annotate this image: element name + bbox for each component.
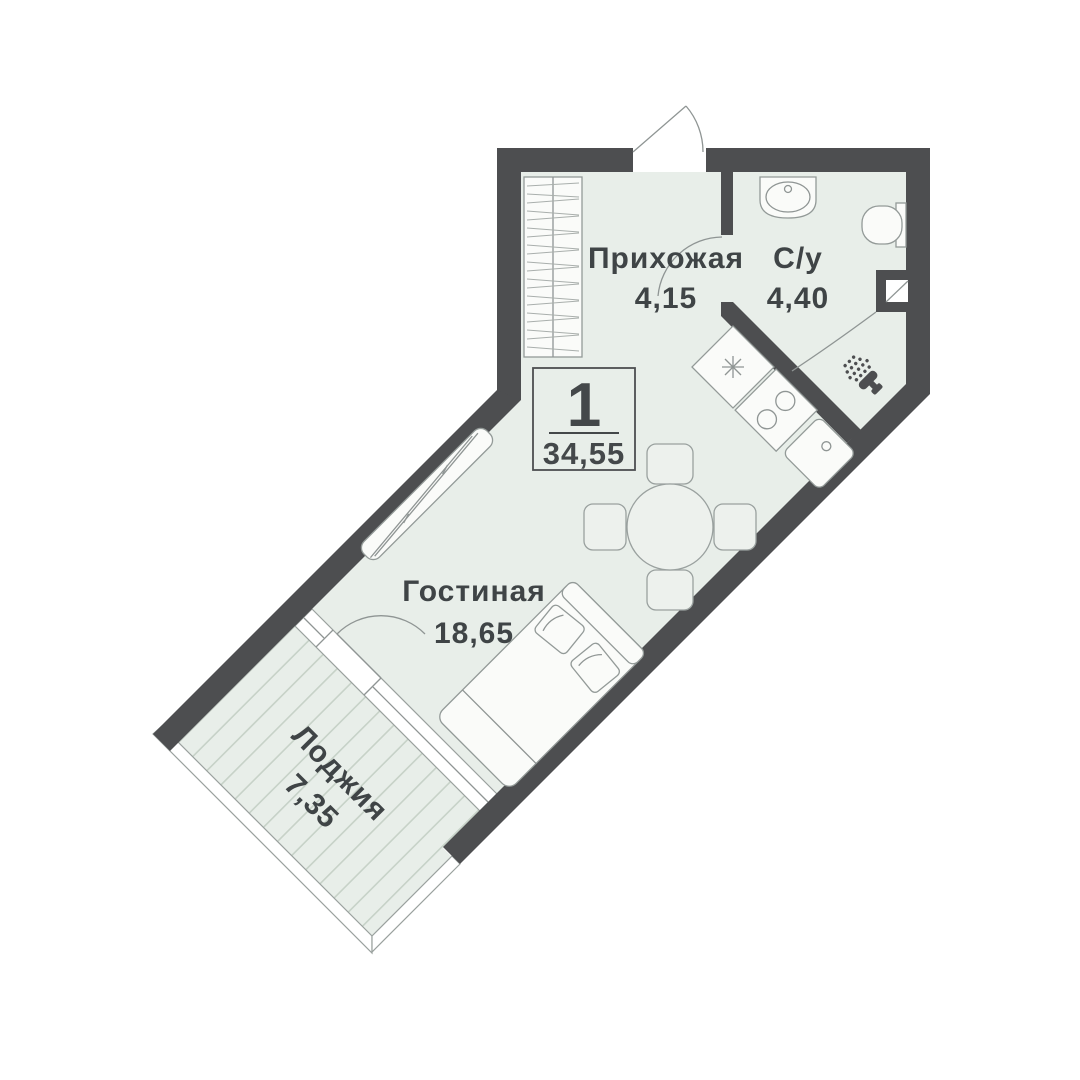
badge-room-count: 1 — [567, 371, 601, 440]
dining-table-icon — [627, 484, 713, 570]
right-wall — [906, 148, 930, 394]
room-area-living: 18,65 — [434, 617, 514, 650]
toilet-icon — [862, 203, 906, 247]
room-area-bathroom: 4,40 — [767, 282, 829, 315]
ventilation-shaft-icon — [876, 270, 908, 312]
room-label-living: Гостиная — [402, 575, 546, 608]
floorplan-canvas: 1 34,55 Прихожая 4,15 С/у 4,40 Гостиная … — [0, 0, 1080, 1080]
cooktop-asterisk-icon — [722, 356, 744, 378]
left-wall — [497, 148, 521, 400]
badge-total-area: 34,55 — [543, 436, 626, 471]
chair-icon — [584, 504, 626, 550]
hall-bath-wall — [721, 172, 733, 235]
entrance-door-icon — [633, 106, 703, 152]
chair-icon — [647, 444, 693, 484]
chair-icon — [647, 570, 693, 610]
room-area-hallway: 4,15 — [635, 282, 697, 315]
room-label-bathroom: С/у — [773, 242, 823, 275]
room-label-hallway: Прихожая — [588, 242, 744, 275]
top-wall-right — [706, 148, 930, 172]
bath-sink-icon — [760, 177, 816, 218]
floorplan-svg: 1 34,55 Прихожая 4,15 С/у 4,40 Гостиная … — [0, 0, 1080, 1080]
chair-icon — [714, 504, 756, 550]
hall-wardrobe — [524, 177, 582, 357]
